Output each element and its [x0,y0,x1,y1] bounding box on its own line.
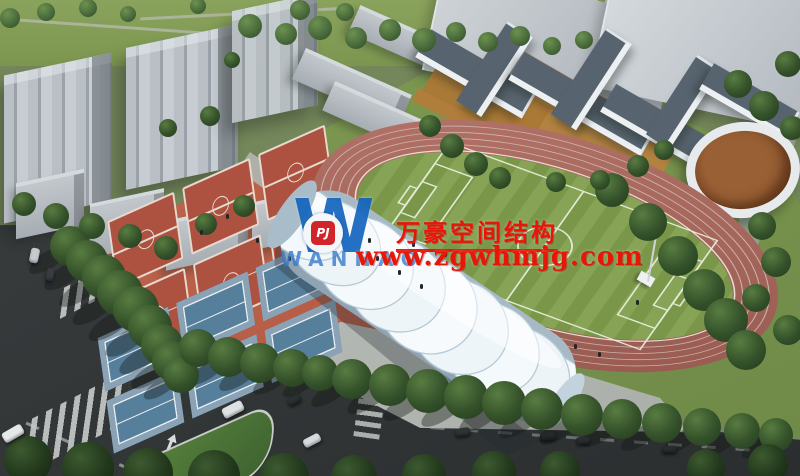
tree [446,22,466,42]
tree [369,364,411,406]
tree [724,70,752,98]
car [540,431,557,440]
tree [748,212,776,240]
tree [590,170,610,190]
tree [726,330,766,370]
tree [464,152,488,176]
tree [200,106,220,126]
person [256,238,259,243]
tree [780,116,800,140]
tree [43,203,69,229]
tree [345,27,367,49]
tree [561,394,603,436]
tree [482,381,526,425]
tree [440,134,464,158]
tree [543,37,561,55]
tree [12,192,36,216]
tree [521,388,563,430]
person [226,214,229,219]
tree [79,213,105,239]
car [662,446,677,454]
tree [154,236,178,260]
watermark-logo-emblem: PJ [311,221,335,245]
tree [627,155,649,177]
tree [290,0,310,20]
tree [233,195,255,217]
tree [406,369,450,413]
tree [224,52,240,68]
person [420,284,423,289]
tree [724,413,760,449]
tree [683,408,721,446]
tree [336,3,354,21]
tree [0,8,20,28]
tree [332,359,372,399]
tree [773,315,800,345]
tree [602,399,642,439]
tree [629,203,667,241]
tree [412,28,436,52]
tree [118,224,142,248]
person [200,230,203,235]
tree [749,91,779,121]
tree [275,23,297,45]
tree [775,51,800,77]
tree [748,444,788,476]
tree [510,26,530,46]
tree [546,172,566,192]
tree [195,213,217,235]
tree [120,6,136,22]
tree [654,140,674,160]
tree [761,247,791,277]
person [574,344,577,349]
person [636,300,639,305]
tree [742,284,770,312]
tree [238,14,262,38]
tree [478,32,498,52]
car [576,437,590,445]
tree [489,167,511,189]
tree [4,436,52,476]
watermark-logo-circle: PJ [303,213,343,253]
tree [658,236,698,276]
aerial-render: W PJ WANHAO 万豪空间结构 www.zgwhmjg.com [0,0,800,476]
tree [642,403,682,443]
person [598,352,601,357]
watermark-website: www.zgwhmjg.com [356,242,644,272]
tree [379,19,401,41]
tree [419,115,441,137]
tree [444,375,488,419]
tree [575,31,593,49]
tree [159,119,177,137]
tree [308,16,332,40]
tree [37,3,55,21]
